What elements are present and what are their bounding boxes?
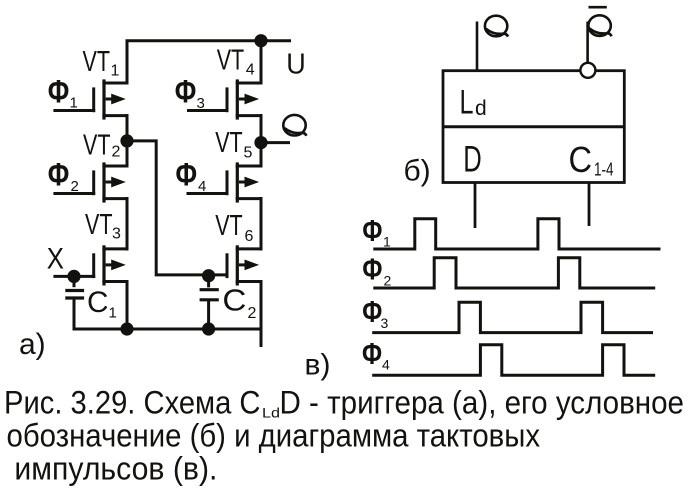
svg-text:3: 3	[112, 226, 121, 243]
svg-text:Φ: Φ	[362, 295, 382, 329]
svg-text:4: 4	[382, 357, 390, 373]
svg-text:D - триггера (а), его условное: D - триггера (а), его условное	[280, 385, 685, 421]
svg-text:X: X	[47, 242, 64, 275]
svg-text:d: d	[475, 97, 487, 120]
svg-text:L: L	[460, 83, 474, 121]
svg-text:Φ: Φ	[48, 74, 70, 110]
svg-text:2: 2	[248, 305, 257, 322]
svg-text:U: U	[286, 48, 306, 80]
svg-text:1: 1	[111, 63, 120, 80]
svg-text:б): б)	[404, 154, 431, 187]
svg-text:6: 6	[245, 228, 254, 245]
svg-text:4: 4	[246, 62, 255, 79]
svg-text:1-4: 1-4	[594, 160, 614, 180]
svg-text:1: 1	[383, 234, 391, 250]
svg-text:Φ: Φ	[362, 253, 382, 287]
svg-text:C: C	[222, 283, 246, 318]
svg-text:2: 2	[71, 178, 79, 195]
svg-text:Φ: Φ	[362, 214, 382, 248]
svg-text:1: 1	[70, 95, 78, 112]
svg-text:Φ: Φ	[176, 157, 198, 193]
svg-text:3: 3	[381, 315, 389, 331]
svg-text:5: 5	[244, 145, 253, 162]
svg-text:VT: VT	[215, 127, 243, 159]
svg-text:3: 3	[197, 95, 205, 112]
svg-text:обозначение (б) и диаграмма та: обозначение (б) и диаграмма тактовых	[7, 418, 541, 454]
svg-text:в): в)	[305, 349, 331, 382]
svg-text:VT: VT	[215, 210, 243, 242]
svg-text:2: 2	[384, 273, 392, 289]
svg-text:VT: VT	[83, 46, 111, 78]
svg-text:Φ: Φ	[362, 337, 382, 371]
svg-text:2: 2	[112, 144, 121, 161]
svg-text:импульсов (в).: импульсов (в).	[14, 451, 217, 487]
svg-text:Φ: Φ	[175, 74, 197, 110]
svg-text:4: 4	[198, 178, 206, 195]
svg-text:1: 1	[109, 305, 117, 322]
svg-text:VT: VT	[217, 45, 245, 77]
svg-text:C: C	[87, 286, 109, 319]
svg-text:D: D	[463, 139, 482, 180]
svg-text:C: C	[569, 139, 593, 180]
svg-text:а): а)	[19, 328, 46, 361]
svg-text:VT: VT	[85, 209, 113, 241]
svg-text:Φ: Φ	[48, 157, 70, 193]
svg-text:Рис. 3.29. Схема С: Рис. 3.29. Схема С	[4, 385, 261, 421]
svg-text:VT: VT	[83, 130, 111, 162]
